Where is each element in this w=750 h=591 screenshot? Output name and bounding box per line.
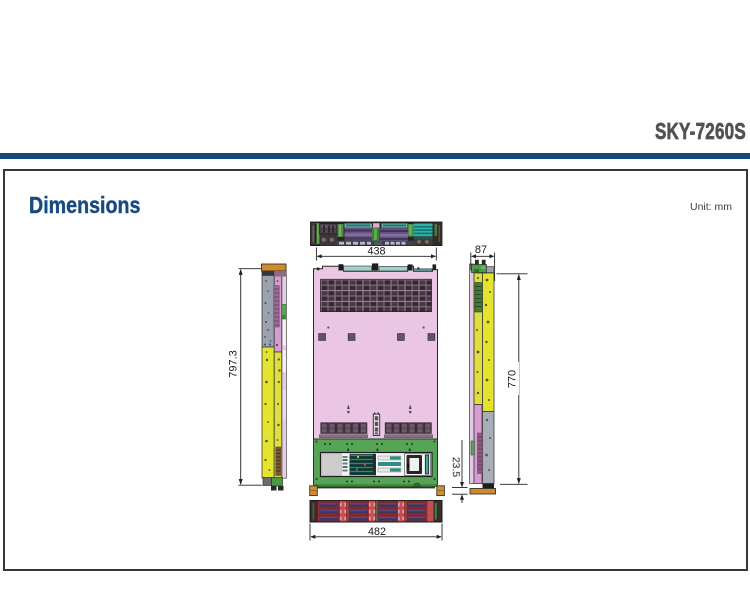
svg-text:797.3: 797.3	[228, 350, 240, 378]
svg-text:438: 438	[367, 246, 385, 258]
svg-text:87: 87	[475, 244, 487, 256]
svg-text:770: 770	[507, 370, 519, 388]
svg-text:482: 482	[368, 526, 386, 538]
svg-text:23.5: 23.5	[450, 457, 462, 478]
